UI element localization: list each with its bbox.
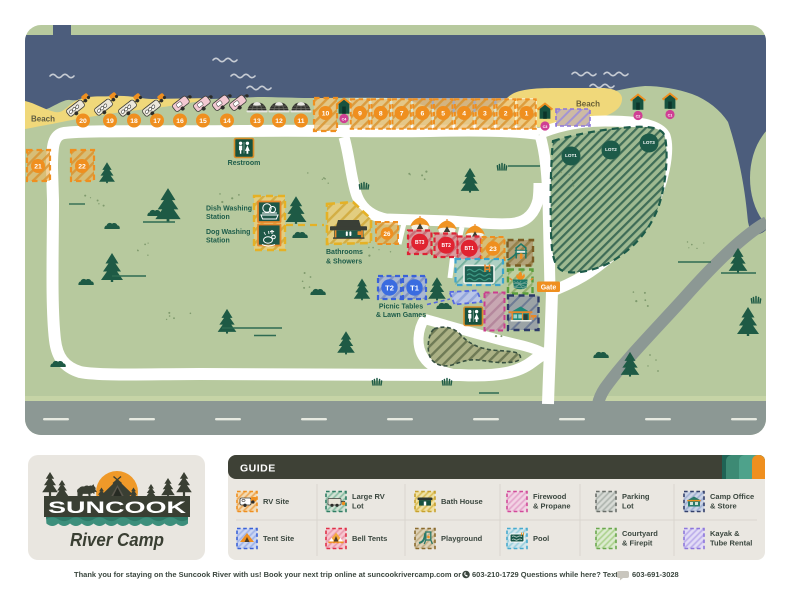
svg-text:BT3: BT3	[415, 240, 425, 246]
svg-text:& Propane: & Propane	[533, 502, 571, 511]
svg-text:603-691-3028: 603-691-3028	[632, 570, 679, 579]
svg-text:21: 21	[34, 163, 42, 170]
svg-text:Pool: Pool	[533, 534, 549, 543]
svg-text:16: 16	[176, 118, 184, 125]
svg-text:Large RV: Large RV	[352, 492, 385, 501]
svg-text:5: 5	[441, 110, 445, 117]
svg-text:& Showers: & Showers	[326, 259, 362, 266]
svg-text:LOT1: LOT1	[565, 153, 577, 158]
svg-text:603-210-1729 Questions while h: 603-210-1729 Questions while here? Text	[472, 570, 618, 579]
svg-text:20: 20	[79, 118, 87, 125]
svg-text:Bell Tents: Bell Tents	[352, 534, 387, 543]
svg-text:8: 8	[379, 110, 383, 117]
svg-text:Camp Office: Camp Office	[710, 492, 754, 501]
svg-text:Beach: Beach	[31, 115, 55, 124]
svg-text:BT2: BT2	[441, 243, 451, 249]
svg-text:T1: T1	[410, 283, 419, 292]
svg-text:6: 6	[421, 110, 425, 117]
svg-text:Dog Washing: Dog Washing	[206, 229, 250, 236]
svg-text:Bathrooms: Bathrooms	[326, 249, 363, 256]
svg-text:23: 23	[489, 246, 497, 253]
svg-text:26: 26	[384, 231, 391, 238]
svg-text:Restroom: Restroom	[228, 160, 261, 167]
svg-text:7: 7	[400, 110, 404, 117]
svg-text:4: 4	[462, 110, 466, 117]
svg-text:1: 1	[525, 110, 529, 117]
svg-text:C1: C1	[668, 113, 673, 117]
svg-text:13: 13	[253, 118, 261, 125]
svg-text:& Lawn Games: & Lawn Games	[376, 312, 426, 319]
svg-text:C3: C3	[543, 125, 548, 129]
svg-text:& Firepit: & Firepit	[622, 539, 653, 548]
svg-text:19: 19	[106, 118, 114, 125]
svg-text:BT1: BT1	[464, 246, 474, 252]
svg-text:Thank you for staying on the S: Thank you for staying on the Suncook Riv…	[74, 570, 461, 579]
svg-text:Playground: Playground	[441, 534, 483, 543]
svg-text:3: 3	[483, 110, 487, 117]
svg-text:10: 10	[322, 110, 330, 117]
svg-text:RV Site: RV Site	[263, 497, 289, 506]
svg-text:LOT3: LOT3	[643, 140, 655, 145]
svg-text:GUIDE: GUIDE	[240, 463, 276, 475]
svg-text:12: 12	[275, 118, 283, 125]
svg-text:22: 22	[78, 163, 86, 170]
svg-text:C2: C2	[636, 114, 641, 118]
svg-text:Firewood: Firewood	[533, 492, 567, 501]
svg-text:9: 9	[358, 110, 362, 117]
svg-text:Lot: Lot	[352, 502, 364, 511]
svg-text:& Store: & Store	[710, 502, 737, 511]
svg-text:Lot: Lot	[622, 502, 634, 511]
svg-text:17: 17	[153, 118, 161, 125]
svg-text:Courtyard: Courtyard	[622, 529, 658, 538]
svg-text:14: 14	[223, 118, 231, 125]
svg-text:15: 15	[199, 118, 207, 125]
svg-text:Beach: Beach	[576, 100, 600, 109]
svg-text:Tube Rental: Tube Rental	[710, 539, 752, 548]
svg-text:River Camp: River Camp	[70, 530, 164, 550]
svg-text:Station: Station	[206, 237, 230, 244]
svg-text:Parking: Parking	[622, 492, 650, 501]
svg-text:Picnic Tables: Picnic Tables	[379, 304, 423, 311]
svg-text:T2: T2	[385, 283, 394, 292]
svg-text:LOT2: LOT2	[605, 147, 617, 152]
svg-text:Station: Station	[206, 214, 230, 221]
svg-text:Bath House: Bath House	[441, 497, 483, 506]
svg-text:2: 2	[504, 110, 508, 117]
svg-text:Gate: Gate	[541, 284, 557, 291]
svg-text:Tent Site: Tent Site	[263, 534, 294, 543]
svg-text:SUNCOOK: SUNCOOK	[48, 499, 186, 517]
svg-text:18: 18	[130, 118, 138, 125]
svg-text:Kayak &: Kayak &	[710, 529, 740, 538]
svg-text:Dish Washing: Dish Washing	[206, 206, 252, 213]
svg-text:11: 11	[297, 118, 304, 125]
